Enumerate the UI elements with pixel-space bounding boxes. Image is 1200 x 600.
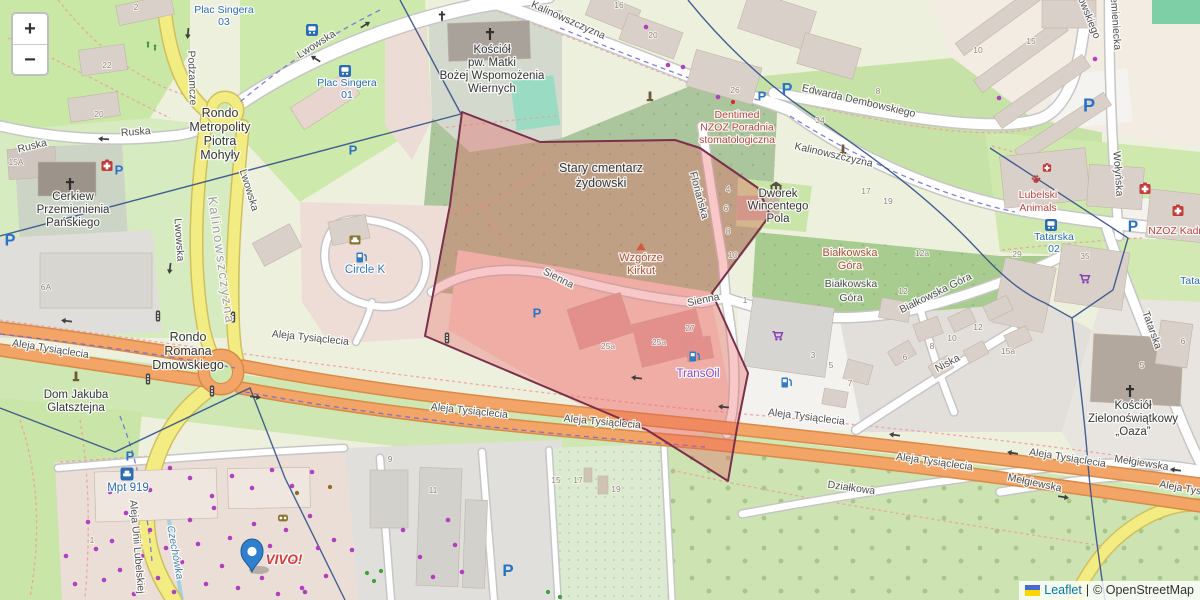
purple-dot-icon — [418, 555, 423, 560]
housenumber-label: 9 — [388, 454, 393, 464]
purple-dot-icon — [252, 522, 257, 527]
purple-dot-icon — [164, 546, 169, 551]
purple-dot-icon — [284, 528, 289, 533]
housenumber-label: 35 — [1080, 251, 1090, 261]
map-canvas[interactable]: P — [0, 0, 1200, 600]
osm-link[interactable]: © OpenStreetMap — [1093, 583, 1194, 597]
traffic-icon — [156, 311, 160, 322]
purple-dot-icon — [172, 590, 177, 595]
purple-dot-icon — [290, 484, 295, 489]
green-dot-icon — [365, 571, 369, 575]
purple-dot-icon — [204, 582, 209, 587]
bus-icon — [1045, 219, 1057, 231]
purple-dot-icon — [102, 578, 107, 583]
purple-dot-icon — [73, 582, 78, 587]
parking-icon — [758, 89, 767, 104]
purple-dot-icon — [644, 25, 649, 30]
purple-dot-icon — [250, 486, 255, 491]
map-label: Circle K — [345, 264, 386, 276]
hospital-icon — [1140, 183, 1151, 195]
housenumber-label: 8 — [876, 86, 881, 96]
housenumber-label: 25a — [601, 341, 615, 351]
purple-dot-icon — [210, 494, 215, 499]
housenumber-label: 29 — [1012, 249, 1022, 259]
purple-dot-icon — [276, 592, 281, 597]
purple-dot-icon — [188, 518, 193, 523]
purple-dot-icon — [350, 548, 355, 553]
housenumber-label: 1 — [743, 295, 748, 305]
map-label: VIVO! — [266, 552, 303, 567]
zoom-control: + − — [11, 12, 49, 76]
housenumber-label: 20 — [648, 30, 658, 40]
housenumber-label: 2 — [134, 2, 139, 12]
purple-dot-icon — [230, 474, 235, 479]
taxi-icon — [121, 468, 134, 481]
housenumber-label: 15A — [8, 157, 23, 167]
purple-dot-icon — [124, 511, 129, 516]
housenumber-label: 7 — [848, 378, 853, 388]
housenumber-label: 6A — [41, 282, 52, 292]
purple-dot-icon — [148, 528, 153, 533]
purple-dot-icon — [86, 520, 91, 525]
traffic-icon — [445, 333, 449, 344]
purple-dot-icon — [681, 65, 686, 70]
parking-icon — [126, 449, 135, 464]
bus-icon — [306, 24, 318, 36]
hospital-icon — [1173, 205, 1184, 217]
parking-icon — [349, 143, 358, 158]
zoom-in-button[interactable]: + — [13, 14, 47, 44]
purple-dot-icon — [308, 514, 313, 519]
map-label: LubelskiAnimals — [1019, 189, 1058, 214]
parking-icon — [115, 163, 124, 178]
hospital-icon — [102, 160, 113, 172]
purple-dot-icon — [401, 528, 406, 533]
purple-dot-icon — [446, 518, 451, 523]
purple-dot-icon — [453, 543, 458, 548]
purple-dot-icon — [168, 466, 173, 471]
purple-dot-icon — [300, 586, 305, 591]
housenumber-label: 17 — [861, 186, 871, 196]
attribution-separator: | — [1086, 583, 1089, 597]
housenumber-label: 25a — [652, 337, 666, 347]
carwash-icon — [350, 236, 361, 245]
housenumber-label: 19 — [611, 484, 621, 494]
purple-dot-icon — [228, 536, 233, 541]
purple-dot-icon — [1093, 57, 1098, 62]
housenumber-label: 6 — [1181, 336, 1186, 346]
housenumber-label: 12 — [898, 286, 908, 296]
housenumber-label: 1 — [90, 535, 95, 545]
purple-dot-icon — [156, 576, 161, 581]
housenumber-label: 17 — [573, 475, 583, 485]
leaflet-link[interactable]: Leaflet — [1044, 583, 1082, 597]
hospital-icon — [1043, 163, 1051, 172]
purple-dot-icon — [316, 546, 321, 551]
viewpoint-icon — [278, 515, 288, 522]
housenumber-label: 16 — [614, 0, 624, 10]
housenumber-label: 8 — [726, 226, 731, 236]
purple-dot-icon — [324, 574, 329, 579]
attribution-bar: Leaflet | © OpenStreetMap — [1019, 581, 1200, 600]
traffic-icon — [210, 386, 214, 397]
housenumber-label: 10 — [728, 250, 738, 260]
green-dot-icon — [379, 569, 383, 573]
purple-dot-icon — [666, 63, 671, 68]
map-label: Ruska — [121, 125, 152, 139]
housenumber-label: 3 — [811, 350, 816, 360]
housenumber-label: 10 — [947, 333, 957, 343]
purple-dot-icon — [310, 470, 315, 475]
parking-icon — [1128, 218, 1138, 235]
traffic-icon — [146, 374, 150, 385]
purple-dot-icon — [270, 468, 275, 473]
housenumber-label: 5 — [1140, 360, 1145, 370]
map-label: TransOil — [676, 368, 719, 380]
bus-icon — [339, 65, 351, 77]
housenumber-label: 11 — [429, 485, 438, 495]
parking-icon — [5, 232, 16, 250]
parking-icon — [533, 306, 542, 321]
map-label: Dom JakubaGlatsztejna — [44, 389, 109, 414]
purple-dot-icon — [110, 539, 115, 544]
map-viewport[interactable]: P — [0, 0, 1200, 600]
housenumber-label: 27 — [685, 323, 695, 333]
housenumber-label: 15a — [1001, 346, 1015, 356]
housenumber-label: 4 — [726, 184, 731, 194]
brown-dot-icon — [328, 485, 332, 489]
purple-dot-icon — [94, 547, 99, 552]
parking-icon — [1083, 95, 1095, 115]
purple-dot-icon — [716, 95, 721, 100]
purple-dot-icon — [303, 590, 308, 595]
purple-dot-icon — [188, 476, 193, 481]
purple-dot-icon — [236, 586, 241, 591]
map-label: NZOZ Kadre — [1148, 225, 1200, 237]
purple-dot-icon — [997, 96, 1002, 101]
housenumber-label: 5 — [829, 360, 834, 370]
housenumber-label: 12 — [973, 322, 983, 332]
purple-dot-icon — [332, 538, 337, 543]
purple-dot-icon — [460, 570, 465, 575]
housenumber-label: 34 — [815, 115, 825, 125]
green-dot-icon — [372, 579, 376, 583]
housenumber-label: 12a — [915, 248, 929, 258]
parking-icon — [782, 81, 793, 99]
zoom-out-button[interactable]: − — [13, 44, 47, 74]
housenumber-label: 6 — [903, 352, 908, 362]
map-label: Tatarska — [1180, 275, 1200, 287]
housenumber-label: 20 — [94, 109, 104, 119]
brown-dot-icon — [295, 491, 299, 495]
housenumber-label: 19 — [883, 196, 893, 206]
housenumber-label: 15 — [551, 475, 561, 485]
purple-dot-icon — [64, 554, 69, 559]
housenumber-label: 6 — [724, 203, 729, 213]
purple-dot-icon — [212, 506, 217, 511]
green-dot-icon — [546, 590, 550, 594]
purple-dot-icon — [431, 575, 436, 580]
map-label: Podzamcze — [185, 50, 199, 105]
ukraine-flag-icon — [1025, 585, 1040, 596]
purple-dot-icon — [196, 542, 201, 547]
purple-dot-icon — [260, 576, 265, 581]
purple-dot-icon — [118, 568, 123, 573]
housenumber-label: 10 — [973, 45, 983, 55]
housenumber-label: 8 — [930, 341, 935, 351]
greenfig-icon — [147, 42, 150, 48]
housenumber-label: 15 — [1026, 36, 1036, 46]
housenumber-label: 26 — [730, 85, 740, 95]
purple-dot-icon — [220, 564, 225, 569]
green-dot-icon — [558, 595, 562, 599]
greenfig-icon — [154, 45, 157, 51]
purple-dot-icon — [268, 544, 273, 549]
map-label: Mpt 919 — [107, 482, 149, 494]
red-dot-icon — [731, 100, 735, 104]
parking-icon — [502, 561, 513, 580]
housenumber-label: 22 — [102, 60, 112, 70]
